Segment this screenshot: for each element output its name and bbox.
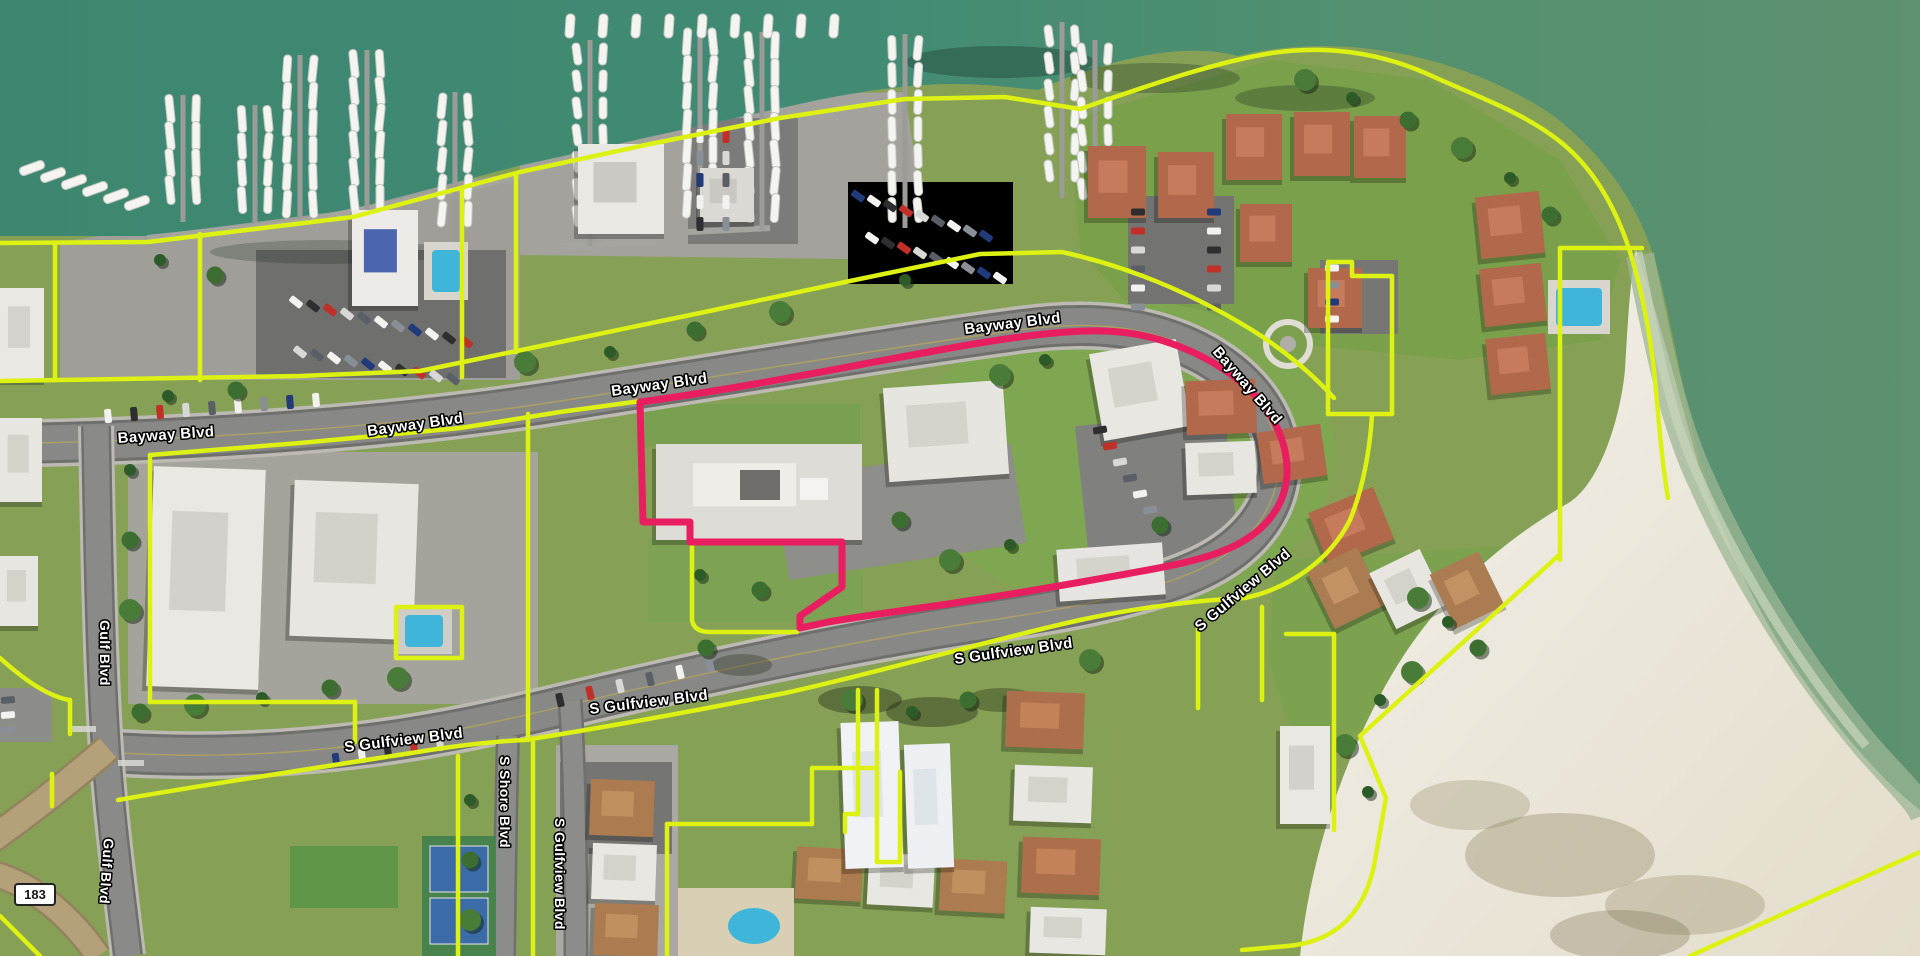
street-label: S Gulfview Blvd — [552, 818, 568, 930]
satellite-map-viewport[interactable]: Bayway BlvdBayway BlvdBayway BlvdBayway … — [0, 0, 1920, 956]
street-label: S Shore Blvd — [497, 756, 513, 848]
satellite-imagery — [0, 0, 1920, 956]
route-shield-number: 183 — [24, 887, 46, 902]
street-label: Gulf Blvd — [97, 620, 113, 686]
route-shield: 183 — [15, 884, 55, 905]
